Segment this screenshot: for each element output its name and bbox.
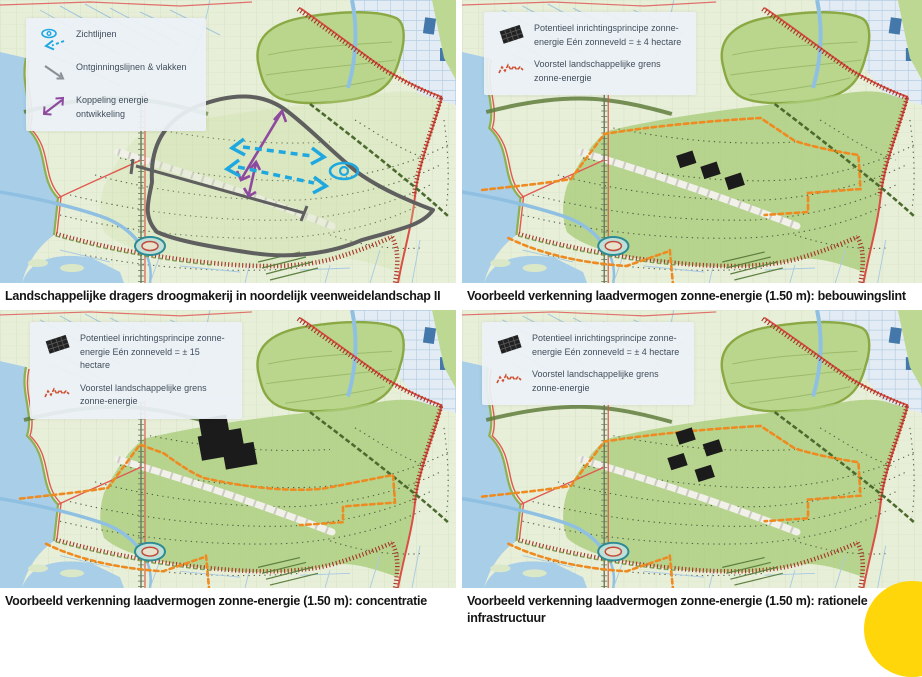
legend-item: Potentieel inrichtingsprincipe zonne-ene… bbox=[494, 332, 682, 359]
legend-item: Koppeling energie ontwikkeling bbox=[38, 94, 194, 121]
solar-panel-icon bbox=[494, 332, 524, 356]
solar-panel-icon bbox=[496, 22, 526, 46]
solar-panel-icon bbox=[42, 332, 72, 356]
boundary-squiggle-icon bbox=[494, 368, 524, 392]
map-caption: Voorbeeld verkenning laadvermogen zonne-… bbox=[462, 588, 922, 625]
legend-box: Potentieel inrichtingsprincipe zonne-ene… bbox=[484, 12, 696, 95]
legend-label: Koppeling energie ontwikkeling bbox=[76, 94, 194, 121]
legend-box: Zichtlijnen Ontginningslijnen & vlakken … bbox=[26, 18, 206, 131]
legend-item: Voorstel landschappelijke grens zonne-en… bbox=[496, 58, 684, 85]
legend-label: Potentieel inrichtingsprincipe zonne-ene… bbox=[534, 22, 684, 49]
map-caption: Voorbeeld verkenning laadvermogen zonne-… bbox=[462, 283, 922, 310]
legend-label: Potentieel inrichtingsprincipe zonne-ene… bbox=[80, 332, 230, 373]
legend-item: Zichtlijnen bbox=[38, 28, 194, 52]
sightlines-icon bbox=[38, 28, 68, 52]
boundary-squiggle-icon bbox=[496, 58, 526, 82]
energy-coupling-icon bbox=[38, 94, 68, 118]
map-caption: Voorbeeld verkenning laadvermogen zonne-… bbox=[0, 588, 456, 625]
legend-label: Voorstel landschappelijke grens zonne-en… bbox=[80, 382, 230, 409]
legend-box: Potentieel inrichtingsprincipe zonne-ene… bbox=[30, 322, 242, 419]
legend-item: Potentieel inrichtingsprincipe zonne-ene… bbox=[42, 332, 230, 373]
legend-box: Potentieel inrichtingsprincipe zonne-ene… bbox=[482, 322, 694, 405]
legend-label: Ontginningslijnen & vlakken bbox=[76, 61, 194, 75]
legend-label: Zichtlijnen bbox=[76, 28, 194, 42]
map-panel-rationele-infrastructuur: Potentieel inrichtingsprincipe zonne-ene… bbox=[462, 310, 922, 588]
map-panel-landschappelijke-dragers: Zichtlijnen Ontginningslijnen & vlakken … bbox=[0, 0, 456, 283]
legend-label: Voorstel landschappelijke grens zonne-en… bbox=[534, 58, 684, 85]
map-panel-concentratie: Potentieel inrichtingsprincipe zonne-ene… bbox=[0, 310, 456, 588]
legend-label: Voorstel landschappelijke grens zonne-en… bbox=[532, 368, 682, 395]
boundary-squiggle-icon bbox=[42, 382, 72, 406]
map-panel-bebouwingslint: Potentieel inrichtingsprincipe zonne-ene… bbox=[462, 0, 922, 283]
map-caption: Landschappelijke dragers droogmakerij in… bbox=[0, 283, 456, 310]
legend-item: Ontginningslijnen & vlakken bbox=[38, 61, 194, 85]
reclamation-lines-icon bbox=[38, 61, 68, 85]
legend-item: Potentieel inrichtingsprincipe zonne-ene… bbox=[496, 22, 684, 49]
legend-label: Potentieel inrichtingsprincipe zonne-ene… bbox=[532, 332, 682, 359]
legend-item: Voorstel landschappelijke grens zonne-en… bbox=[494, 368, 682, 395]
legend-item: Voorstel landschappelijke grens zonne-en… bbox=[42, 382, 230, 409]
